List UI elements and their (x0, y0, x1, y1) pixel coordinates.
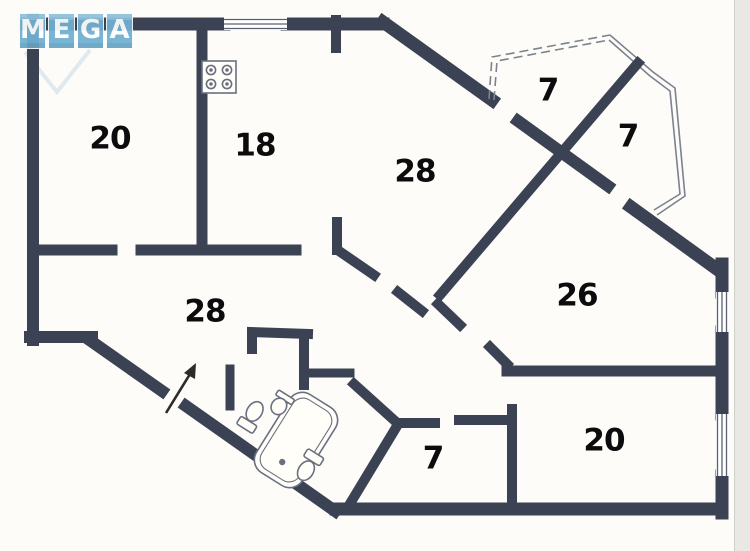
wall-door-post-3 (490, 347, 507, 364)
wall-diagonal-top (383, 22, 492, 100)
room-label-storage: 7 (423, 444, 444, 475)
window-icon (716, 292, 729, 332)
window-icon (716, 414, 729, 476)
toilet-icon (236, 398, 268, 434)
room-label-room-right: 26 (556, 281, 597, 312)
room-label-living-room: 28 (394, 157, 435, 188)
room-label-bottom-right: 20 (583, 426, 624, 457)
room-label-kitchen: 18 (234, 131, 275, 162)
mega-logo-letter: E (48, 13, 75, 49)
scan-edge (734, 0, 750, 551)
wall-hall-living (339, 251, 374, 275)
mega-logo-letter: A (106, 13, 133, 49)
wall-diagonal-bottom-left-1 (91, 341, 162, 391)
room-label-hallway: 28 (184, 297, 225, 328)
wall-storage-west (351, 426, 397, 502)
room-label-balcony-right: 7 (618, 122, 639, 153)
wall-bath-storage (354, 384, 395, 421)
window-icon (224, 17, 287, 30)
wall-door-post-1 (398, 292, 422, 311)
mega-logo-letter: M (19, 13, 46, 49)
wall-diagonal-right (631, 207, 714, 267)
mega-logo-letter: G (77, 13, 104, 49)
bathtub-icon (249, 387, 344, 494)
room-label-balcony-left: 7 (538, 76, 559, 107)
wall-door-post-2 (438, 304, 460, 325)
room-label-top-left: 20 (89, 124, 130, 155)
mega-logo-watermark: M E G A (19, 13, 133, 49)
floor-plan-drawing (0, 0, 750, 551)
stove-icon (202, 61, 236, 93)
floor-plan: 20 18 28 7 7 26 28 7 20 M E G A (0, 0, 750, 551)
